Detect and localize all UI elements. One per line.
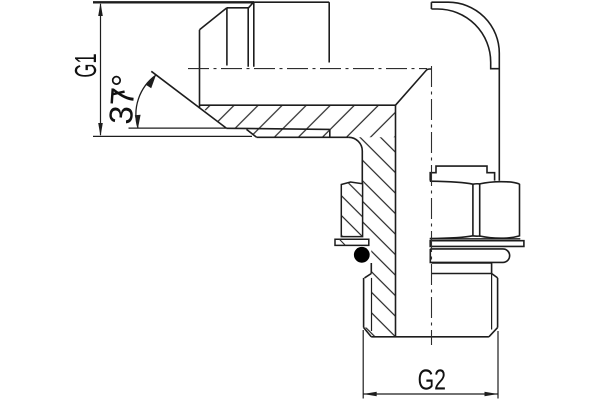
svg-text:G1: G1 <box>68 53 103 77</box>
svg-text:37°: 37° <box>102 73 142 125</box>
svg-text:G2: G2 <box>418 365 446 397</box>
